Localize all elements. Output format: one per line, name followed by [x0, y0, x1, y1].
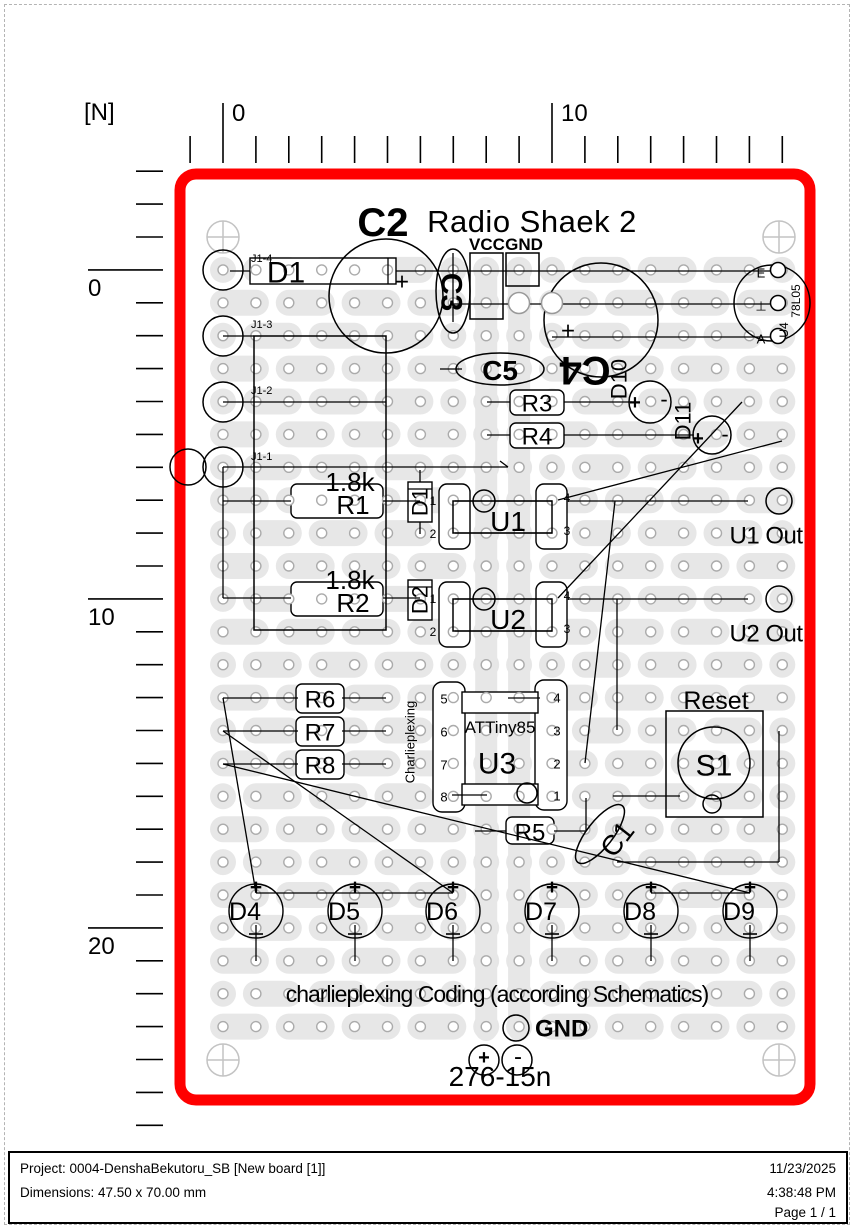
- hole: [679, 331, 689, 341]
- c2-label: C2: [357, 201, 408, 245]
- hole: [613, 890, 623, 900]
- led-label: D9: [723, 898, 755, 926]
- hole: [218, 429, 228, 439]
- hole: [547, 660, 557, 670]
- hole: [712, 627, 722, 637]
- hole: [547, 561, 557, 571]
- r1-label: R1: [336, 490, 369, 520]
- hole: [646, 627, 656, 637]
- led-anode-mark: +: [744, 876, 756, 899]
- u4-pin-e: E: [757, 266, 766, 281]
- board-text: +: [692, 428, 704, 450]
- hole: [415, 923, 425, 933]
- r2-label: R2: [336, 588, 369, 618]
- r4-label: R4: [522, 423, 553, 450]
- hole: [679, 495, 689, 505]
- hole: [580, 331, 590, 341]
- hole: [744, 298, 754, 308]
- hole: [712, 265, 722, 275]
- print-time: 4:38:48 PM: [767, 1185, 836, 1200]
- board-text: 5: [440, 692, 447, 707]
- hole: [218, 627, 228, 637]
- hole: [777, 495, 787, 505]
- hole: [712, 429, 722, 439]
- hole: [448, 660, 458, 670]
- hole: [679, 824, 689, 834]
- hole: [646, 660, 656, 670]
- hole: [613, 758, 623, 768]
- hole: [679, 528, 689, 538]
- hole: [646, 528, 656, 538]
- hole: [744, 1022, 754, 1032]
- hole: [679, 726, 689, 736]
- hole: [514, 462, 524, 472]
- hole: [481, 660, 491, 670]
- hole: [415, 791, 425, 801]
- hole: [448, 857, 458, 867]
- hole: [646, 693, 656, 703]
- hole: [317, 660, 327, 670]
- hole: [317, 956, 327, 966]
- hole: [744, 429, 754, 439]
- hole: [415, 627, 425, 637]
- hole: [777, 462, 787, 472]
- hole: [646, 265, 656, 275]
- hole: [547, 857, 557, 867]
- c5-label: C5: [482, 355, 518, 386]
- hole: [448, 1022, 458, 1032]
- hole: [777, 561, 787, 571]
- hole: [481, 495, 491, 505]
- hole: [251, 627, 261, 637]
- hole: [284, 1022, 294, 1032]
- ruler-number: 0: [232, 100, 245, 127]
- hole: [580, 791, 590, 801]
- print-preview-page: { "footer": { "project": "Project: 0004-…: [0, 0, 854, 1229]
- ruler-number: 20: [88, 933, 115, 960]
- hole: [679, 660, 689, 670]
- hole: [646, 397, 656, 407]
- hole: [777, 989, 787, 999]
- d10-label: D10: [607, 359, 632, 399]
- hole: [744, 462, 754, 472]
- hole: [613, 331, 623, 341]
- hole: [712, 923, 722, 933]
- hole: [481, 923, 491, 933]
- hole: [415, 429, 425, 439]
- hole: [448, 561, 458, 571]
- hole: [383, 660, 393, 670]
- hole: [712, 561, 722, 571]
- j1-1-label: J1-1: [251, 451, 272, 463]
- hole: [350, 660, 360, 670]
- hole: [284, 627, 294, 637]
- hole: [481, 693, 491, 703]
- hole: [580, 528, 590, 538]
- hole: [712, 660, 722, 670]
- ic-u3-toprect: [462, 692, 538, 713]
- hole: [580, 923, 590, 933]
- hole: [383, 594, 393, 604]
- hole: [744, 561, 754, 571]
- hole: [712, 495, 722, 505]
- led-anode-mark: +: [447, 876, 459, 899]
- hole: [777, 956, 787, 966]
- hole: [679, 956, 689, 966]
- hole: [251, 298, 261, 308]
- gnd-bottom-label: GND: [535, 1015, 588, 1042]
- hole: [679, 758, 689, 768]
- hole: [646, 561, 656, 571]
- hole: [580, 956, 590, 966]
- hole: [712, 1022, 722, 1032]
- hole: [777, 594, 787, 604]
- hole: [317, 265, 327, 275]
- ruler-number: 0: [88, 275, 101, 302]
- hole: [481, 561, 491, 571]
- r5-label: R5: [515, 819, 546, 846]
- u1-out-label: U1 Out: [729, 522, 803, 549]
- hole: [712, 298, 722, 308]
- hole: [514, 857, 524, 867]
- hole: [251, 857, 261, 867]
- hole: [350, 429, 360, 439]
- hole: [251, 561, 261, 571]
- hole: [613, 298, 623, 308]
- hole: [383, 627, 393, 637]
- hole: [613, 627, 623, 637]
- hole: [251, 265, 261, 275]
- hole: [383, 561, 393, 571]
- hole: [383, 298, 393, 308]
- hole: [218, 660, 228, 670]
- hole: [580, 495, 590, 505]
- hole: [284, 956, 294, 966]
- hole: [218, 265, 228, 275]
- hole: [580, 462, 590, 472]
- hole: [481, 857, 491, 867]
- hole: [514, 561, 524, 571]
- j1-4-label: J1-4: [251, 253, 272, 265]
- hole: [284, 660, 294, 670]
- hole: [712, 528, 722, 538]
- hole: [613, 923, 623, 933]
- u2-label: U2: [490, 604, 526, 635]
- hole: [284, 857, 294, 867]
- hole: [350, 298, 360, 308]
- hole: [777, 923, 787, 933]
- hole: [383, 495, 393, 505]
- hole: [547, 364, 557, 374]
- hole: [317, 1022, 327, 1032]
- hole: [580, 660, 590, 670]
- hole: [383, 824, 393, 834]
- led-anode-mark: +: [349, 876, 361, 899]
- hole: [712, 462, 722, 472]
- hole: [317, 923, 327, 933]
- hole: [777, 890, 787, 900]
- hole: [481, 791, 491, 801]
- hole: [317, 364, 327, 374]
- hole: [383, 956, 393, 966]
- hole: [547, 331, 557, 341]
- u4-part-label: 78L05: [789, 284, 803, 318]
- r3-label: R3: [522, 390, 553, 417]
- hole: [777, 660, 787, 670]
- led-anode-mark: +: [546, 876, 558, 899]
- hole: [218, 364, 228, 374]
- board-text: -: [721, 422, 728, 447]
- c4-label: C4: [559, 348, 611, 392]
- u4-pin-gnd: ⊥: [755, 299, 766, 314]
- hole: [613, 693, 623, 703]
- hole: [251, 594, 261, 604]
- hole: [547, 265, 557, 275]
- hole: [251, 528, 261, 538]
- hole: [613, 462, 623, 472]
- board-text: 3: [553, 724, 560, 739]
- hole: [613, 660, 623, 670]
- hole: [251, 660, 261, 670]
- hole: [415, 1022, 425, 1032]
- u3-part-label: ATTiny85: [465, 718, 536, 737]
- hole: [712, 890, 722, 900]
- hole: [284, 561, 294, 571]
- regulator-u4-pad: [771, 296, 786, 311]
- led-anode-mark: +: [250, 876, 262, 899]
- hole: [514, 265, 524, 275]
- board-text: 4: [564, 491, 571, 505]
- hole: [481, 298, 491, 308]
- hole: [514, 331, 524, 341]
- hole: [284, 528, 294, 538]
- hole: [679, 890, 689, 900]
- ic-u1-pinbox: [439, 484, 470, 549]
- hole: [218, 1022, 228, 1032]
- regulator-u4-pad: [771, 263, 786, 278]
- led-anode-mark: +: [645, 876, 657, 899]
- hole: [317, 594, 327, 604]
- gnd-top-label: GND: [505, 235, 543, 254]
- hole: [646, 462, 656, 472]
- hole: [251, 495, 261, 505]
- hole: [777, 1022, 787, 1032]
- hole: [712, 989, 722, 999]
- hole: [218, 857, 228, 867]
- hole: [613, 528, 623, 538]
- hole: [646, 726, 656, 736]
- hole: [284, 594, 294, 604]
- hole: [514, 956, 524, 966]
- j1-3-label: J1-3: [251, 319, 272, 331]
- via-hole: [542, 293, 563, 314]
- s1-label: S1: [696, 750, 733, 783]
- hole: [350, 1022, 360, 1032]
- hole: [251, 1022, 261, 1032]
- hole: [350, 627, 360, 637]
- hole: [481, 331, 491, 341]
- hole: [646, 1022, 656, 1032]
- hole: [218, 298, 228, 308]
- led-label: D7: [525, 898, 557, 926]
- board-text: 3: [564, 622, 571, 636]
- led-label: D5: [328, 898, 360, 926]
- board-text: 4: [564, 589, 571, 603]
- hole: [613, 1022, 623, 1032]
- board-text: -: [514, 1043, 522, 1070]
- hole: [547, 462, 557, 472]
- hole: [679, 265, 689, 275]
- hole: [350, 265, 360, 275]
- vcc-label: VCC: [469, 235, 505, 254]
- j1-2-label: J1-2: [251, 385, 272, 397]
- hole: [580, 298, 590, 308]
- hole: [744, 660, 754, 670]
- hole: [646, 824, 656, 834]
- hole: [218, 923, 228, 933]
- project-name: Project: 0004-DenshaBekutoru_SB [New boa…: [20, 1161, 325, 1176]
- u2-out-label: U2 Out: [729, 620, 803, 647]
- board-text: -: [660, 387, 667, 412]
- hole: [415, 660, 425, 670]
- hole: [383, 791, 393, 801]
- hole: [514, 660, 524, 670]
- hole: [383, 923, 393, 933]
- hole: [777, 397, 787, 407]
- hole: [448, 429, 458, 439]
- hole: [712, 397, 722, 407]
- hole: [317, 627, 327, 637]
- hole: [317, 429, 327, 439]
- hole: [251, 824, 261, 834]
- hole: [251, 364, 261, 374]
- hole: [383, 429, 393, 439]
- hole: [218, 791, 228, 801]
- hole: [712, 824, 722, 834]
- ic-u3-pinbox: [433, 682, 465, 812]
- hole: [350, 857, 360, 867]
- hole: [744, 824, 754, 834]
- u4-label: U4: [777, 322, 791, 338]
- via-hole: [509, 293, 530, 314]
- hole: [218, 890, 228, 900]
- r7-label: R7: [305, 719, 336, 746]
- hole: [284, 791, 294, 801]
- d1-label: D1: [267, 257, 305, 290]
- hole: [251, 989, 261, 999]
- title-block: Project: 0004-DenshaBekutoru_SB [New boa…: [8, 1151, 848, 1224]
- hole: [415, 298, 425, 308]
- hole: [679, 791, 689, 801]
- board-text: 2: [430, 625, 437, 639]
- hole: [448, 397, 458, 407]
- hole: [284, 364, 294, 374]
- board-text: +: [478, 1047, 490, 1069]
- hole: [679, 298, 689, 308]
- hole: [284, 824, 294, 834]
- hole: [448, 824, 458, 834]
- hole: [679, 627, 689, 637]
- hole: [383, 890, 393, 900]
- hole: [284, 298, 294, 308]
- hole: [448, 693, 458, 703]
- hole: [481, 890, 491, 900]
- board-text: 3: [564, 524, 571, 538]
- hole: [744, 989, 754, 999]
- hole: [646, 758, 656, 768]
- hole: [383, 1022, 393, 1032]
- board-text: 1: [430, 592, 437, 606]
- hole: [415, 824, 425, 834]
- u4-pin-a: A: [757, 332, 766, 347]
- charlieplexing-label: Charlieplexing: [403, 701, 418, 783]
- hole: [448, 791, 458, 801]
- hole: [580, 627, 590, 637]
- hole: [284, 429, 294, 439]
- hole: [218, 824, 228, 834]
- hole: [284, 495, 294, 505]
- hole: [284, 923, 294, 933]
- board-text: +: [629, 392, 641, 414]
- hole: [712, 331, 722, 341]
- pcb-layout-canvas: [N]01001020+D4+D5+D6+D7+D8+D9C2Radio Sha…: [0, 0, 854, 1229]
- page-indicator: Page 1 / 1: [774, 1205, 836, 1220]
- board-dimensions: Dimensions: 47.50 x 70.00 mm: [20, 1185, 206, 1200]
- hole: [415, 890, 425, 900]
- hole: [415, 857, 425, 867]
- ruler-number: 10: [561, 100, 588, 127]
- hole: [481, 956, 491, 966]
- hole: [218, 956, 228, 966]
- board-text: 4: [553, 691, 560, 706]
- hole: [744, 791, 754, 801]
- led-label: D8: [624, 898, 656, 926]
- u1-label: U1: [490, 506, 526, 537]
- hole: [317, 857, 327, 867]
- hole: [777, 693, 787, 703]
- c2-plus: +: [395, 268, 409, 295]
- hole: [712, 956, 722, 966]
- board-text: 1: [553, 789, 560, 804]
- hole: [679, 561, 689, 571]
- hole: [415, 397, 425, 407]
- board-text: 6: [440, 725, 447, 740]
- hole: [646, 364, 656, 374]
- board-text: 2: [430, 527, 437, 541]
- hole: [514, 923, 524, 933]
- board-text: 2: [553, 757, 560, 772]
- hole: [251, 791, 261, 801]
- hole: [415, 364, 425, 374]
- hole: [580, 693, 590, 703]
- hole: [383, 364, 393, 374]
- hole: [547, 824, 557, 834]
- reset-label: Reset: [683, 687, 748, 715]
- hole: [448, 726, 458, 736]
- board-text: 8: [440, 790, 447, 805]
- hole: [744, 397, 754, 407]
- hole: [679, 364, 689, 374]
- hole: [218, 989, 228, 999]
- hole: [383, 857, 393, 867]
- board-text: 7: [440, 758, 447, 773]
- hole: [415, 561, 425, 571]
- hole: [317, 298, 327, 308]
- part-number: 276-15n: [449, 1061, 552, 1092]
- board-title: Radio Shaek 2: [427, 204, 637, 239]
- hole: [777, 429, 787, 439]
- hole: [613, 726, 623, 736]
